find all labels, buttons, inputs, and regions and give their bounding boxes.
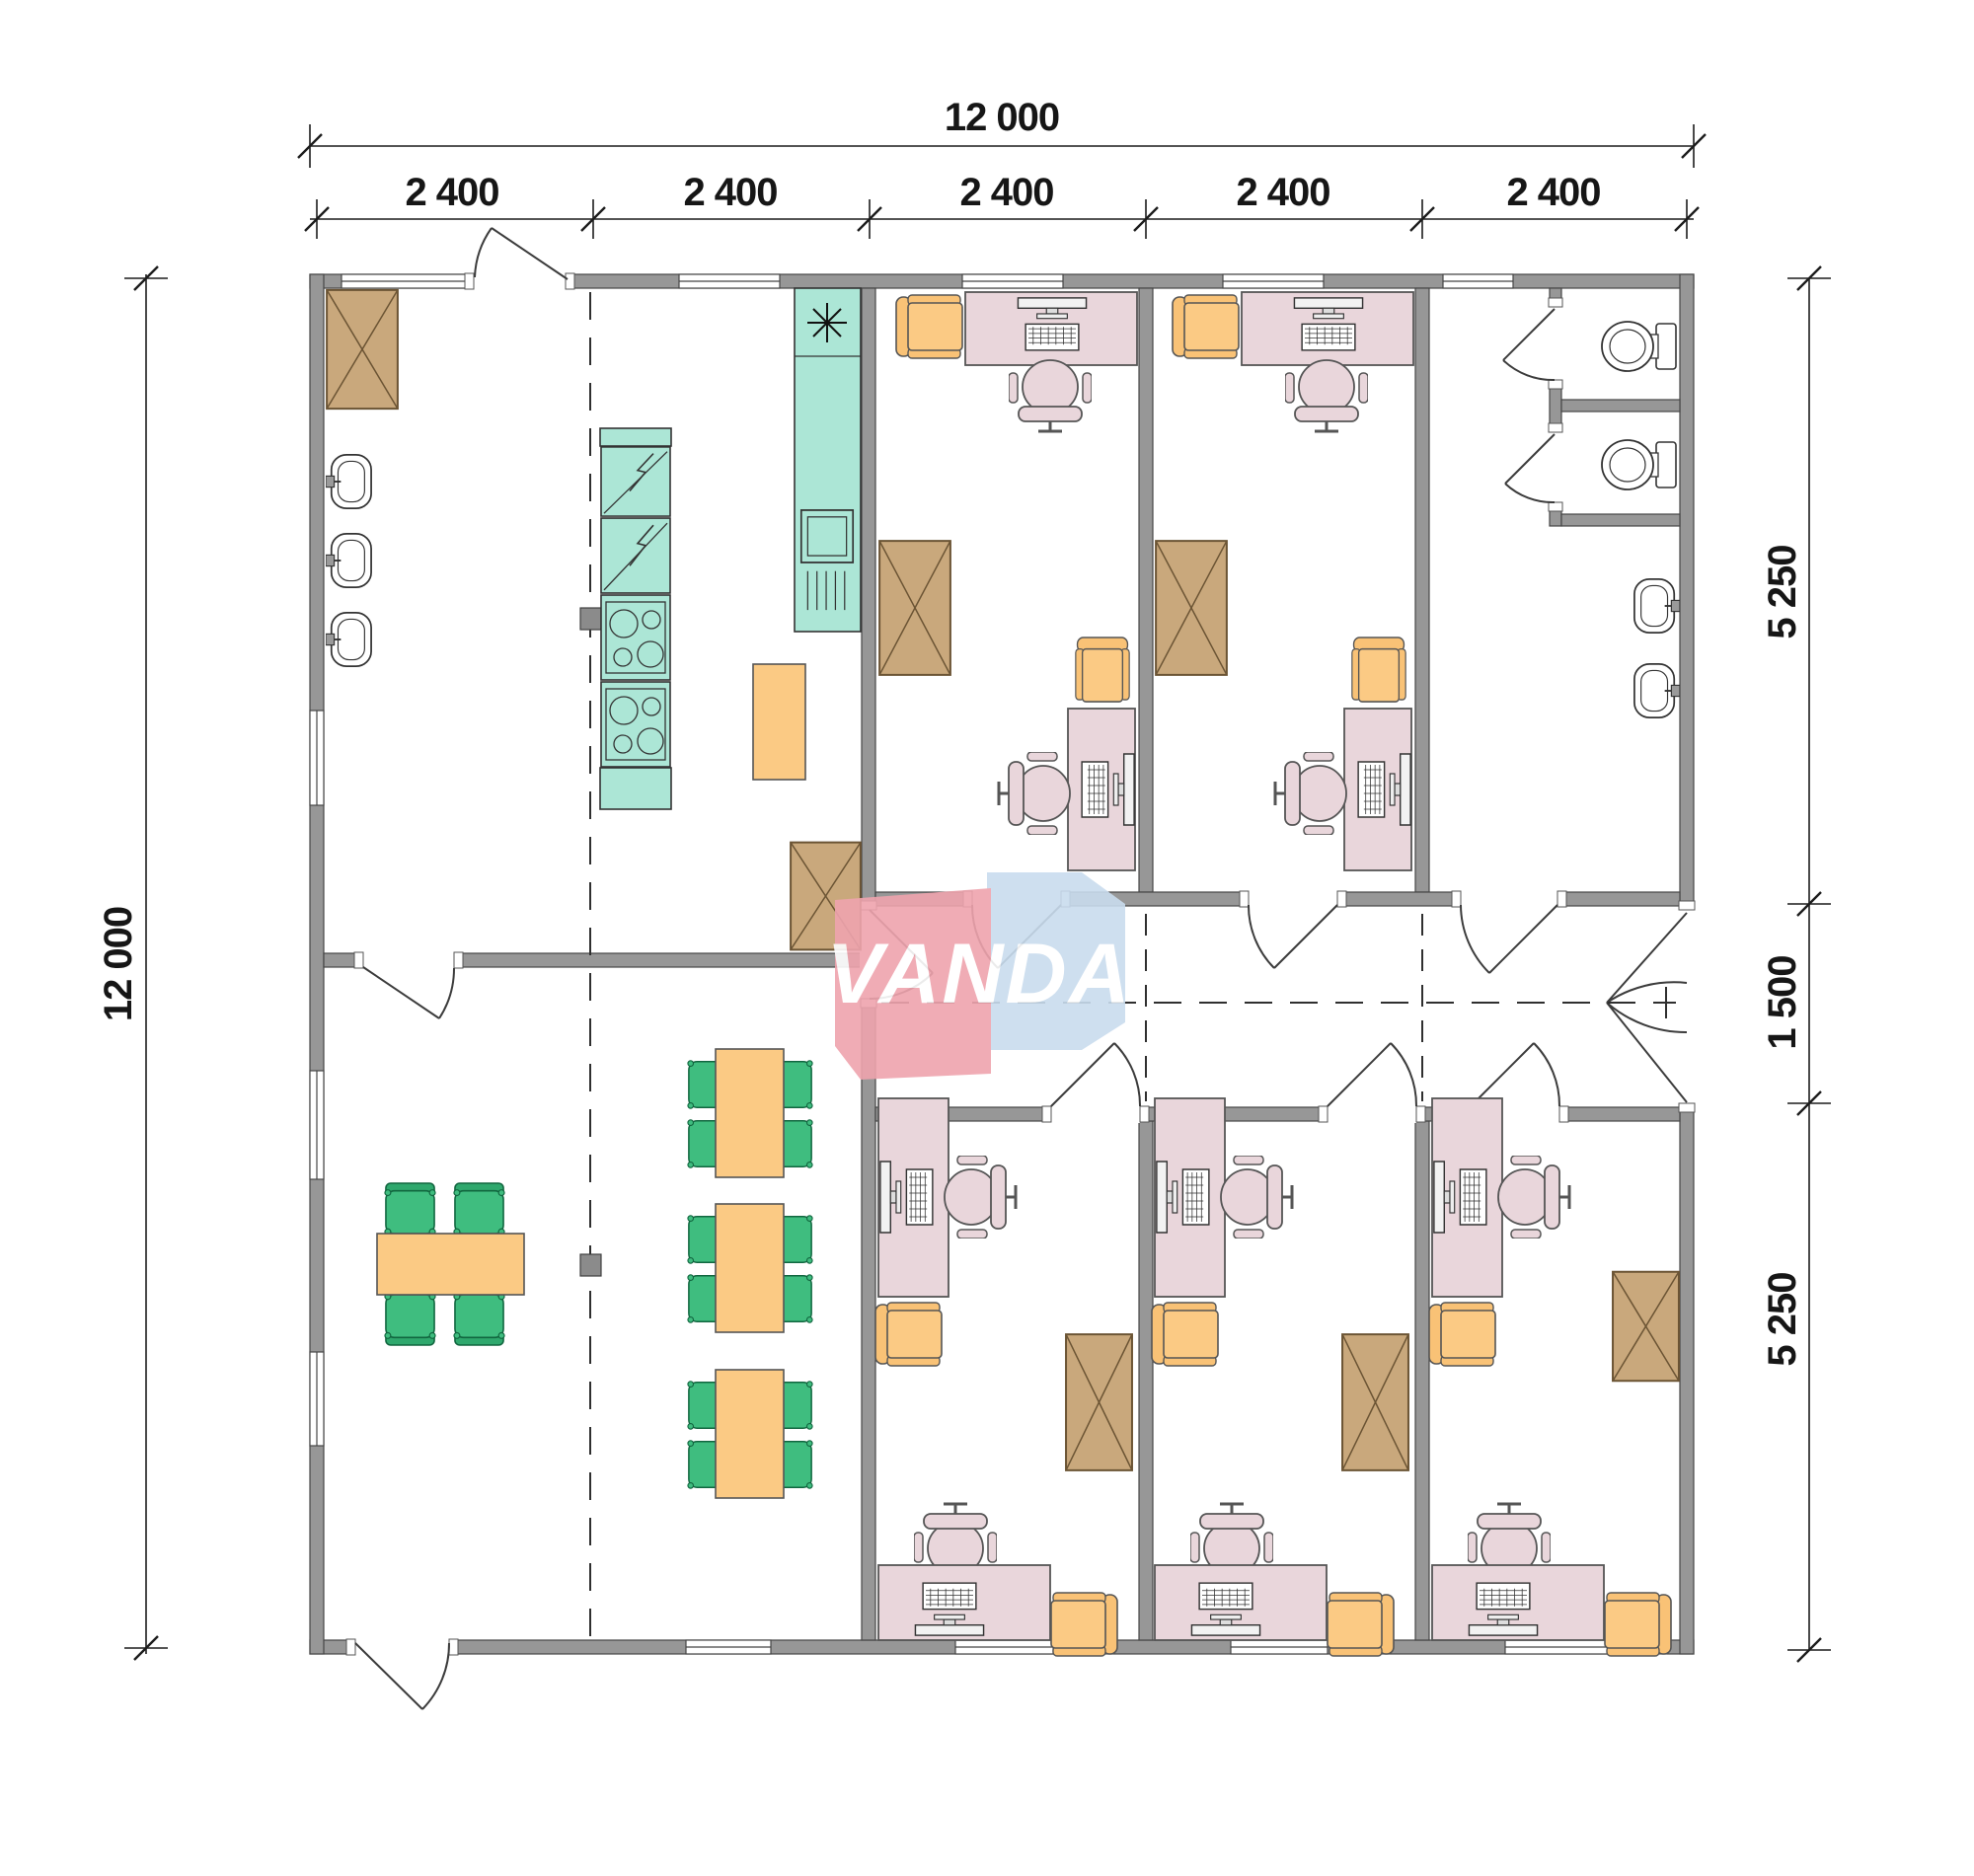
window-left-1: [310, 711, 324, 805]
dim-left-total: 12 000: [96, 846, 141, 1083]
guest-chair: [1051, 1593, 1117, 1656]
dining-table: [377, 1234, 524, 1295]
office-chair: [999, 752, 1070, 835]
dining-chair: [385, 1183, 435, 1235]
door-office-2: [1328, 1043, 1416, 1106]
computer: [880, 1162, 933, 1233]
door-office-3: [1471, 1043, 1559, 1106]
dim-module-2: 2 400: [671, 170, 790, 215]
dining-table: [716, 1049, 784, 1177]
door-wc-stall-2: [1505, 434, 1555, 502]
room-office-a: [879, 292, 1137, 870]
dim-top-total: 12 000: [883, 95, 1120, 140]
computer: [1434, 1162, 1486, 1233]
computer: [1358, 754, 1410, 825]
window-left-2: [310, 1071, 324, 1179]
guest-chair: [1429, 1303, 1495, 1366]
window-top-5: [1443, 274, 1513, 288]
window-bottom-2: [955, 1640, 1053, 1654]
window-top-4: [1223, 274, 1324, 288]
window-left-3: [310, 1352, 324, 1446]
computer: [1157, 1162, 1209, 1233]
guest-chair: [896, 295, 962, 358]
office-chair: [1285, 360, 1368, 431]
column: [580, 1254, 601, 1276]
guest-chair: [1152, 1303, 1218, 1366]
office-chair: [945, 1156, 1016, 1238]
ceiling-lamp-icon: [807, 303, 847, 342]
door-office-1: [1051, 1043, 1140, 1106]
wash-basin: [326, 455, 371, 508]
wardrobe: [879, 541, 950, 675]
door-office-b: [1249, 905, 1337, 968]
floor-plan-canvas: VANDA 12 000 2 400 2 400 2 400 2 400 2 4…: [0, 0, 1974, 1876]
door-main-right: [1607, 913, 1687, 1102]
office-chair: [1275, 752, 1346, 835]
window-top-1: [342, 274, 470, 288]
kitchen-table: [753, 664, 805, 780]
dim-module-3: 2 400: [948, 170, 1066, 215]
column: [580, 608, 601, 630]
window-bottom-1: [686, 1640, 771, 1654]
dining-chair: [454, 1183, 504, 1235]
wash-basin: [1634, 664, 1680, 717]
door-wc-lobby: [1461, 905, 1557, 973]
dim-right-bottom: 5 250: [1760, 1221, 1805, 1418]
dining-table: [716, 1370, 784, 1498]
wardrobe: [1342, 1334, 1408, 1470]
dining-table: [716, 1204, 784, 1332]
wardrobe: [327, 290, 398, 409]
fridge: [601, 518, 670, 593]
dim-right-mid: 1 500: [1760, 904, 1805, 1101]
toilet: [1602, 440, 1676, 489]
office-chair: [1009, 360, 1092, 431]
computer: [1082, 754, 1134, 825]
guest-chair: [1328, 1593, 1394, 1656]
office-chair: [1498, 1156, 1569, 1238]
guest-chair: [875, 1303, 942, 1366]
room-office-3: [1429, 1098, 1679, 1656]
fridge: [601, 447, 670, 516]
room-office-1: [875, 1098, 1132, 1656]
computer: [1191, 1583, 1259, 1635]
dim-module-5: 2 400: [1494, 170, 1613, 215]
office-chair: [1221, 1156, 1292, 1238]
wash-basin: [326, 534, 371, 587]
wardrobe: [1613, 1272, 1679, 1382]
computer: [1018, 298, 1086, 350]
guest-chair: [1352, 638, 1405, 702]
window-top-2: [679, 274, 780, 288]
window-bottom-3: [1231, 1640, 1328, 1654]
guest-chair: [1605, 1593, 1671, 1656]
cooktop: [601, 682, 670, 767]
dim-module-1: 2 400: [393, 170, 511, 215]
wardrobe: [1066, 1334, 1132, 1470]
kitchen-cabinet: [600, 768, 671, 809]
room-office-b: [1156, 292, 1413, 870]
window-bottom-4: [1505, 1640, 1609, 1654]
logo-text: VANDA: [826, 927, 1131, 1021]
toilet: [1602, 322, 1676, 371]
guest-chair: [1076, 638, 1129, 702]
computer: [915, 1583, 983, 1635]
vanda-logo: VANDA: [826, 872, 1131, 1080]
wash-basin: [1634, 579, 1680, 633]
dining-chair: [454, 1294, 504, 1345]
room-office-2: [1152, 1098, 1408, 1656]
door-main-top: [475, 228, 568, 279]
computer: [1294, 298, 1362, 350]
kitchen-cabinet: [600, 428, 671, 446]
dim-module-4: 2 400: [1224, 170, 1342, 215]
floor-plan-drawing: VANDA: [0, 0, 1974, 1876]
computer: [1469, 1583, 1537, 1635]
dining-chair: [385, 1294, 435, 1345]
cooktop: [601, 595, 670, 680]
window-top-3: [962, 274, 1063, 288]
wash-basin: [326, 613, 371, 666]
door-kitchen-dining: [363, 967, 454, 1018]
guest-chair: [1173, 295, 1239, 358]
wardrobe: [1156, 541, 1227, 675]
dim-right-top: 5 250: [1760, 493, 1805, 691]
door-wc-stall-1: [1503, 309, 1555, 380]
